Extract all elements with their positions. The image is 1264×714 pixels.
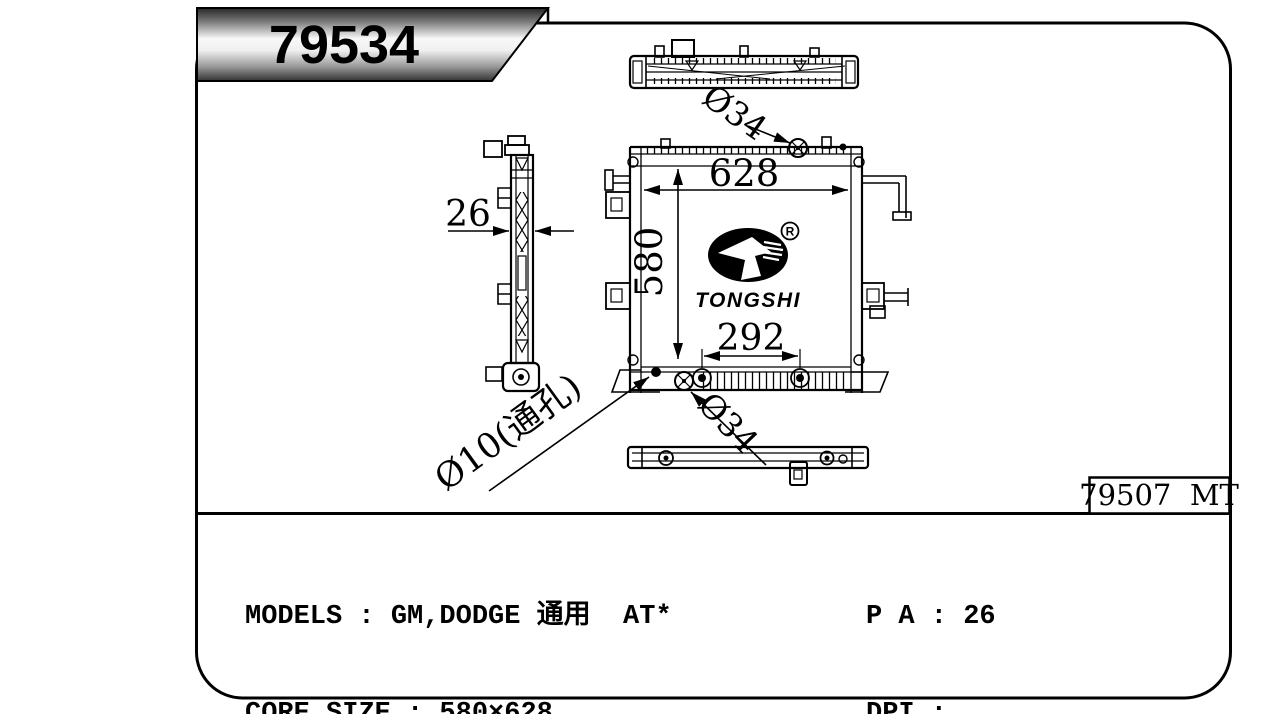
label-bottom-fitting: Ø34: [690, 384, 766, 461]
spec-models: MODELS : GM,DODGE 通用 AT*: [245, 599, 672, 636]
spec-pa: P A : 26: [866, 599, 996, 636]
dim-580: 580: [628, 227, 671, 298]
registered-mark: R: [786, 225, 795, 239]
spec-table-right: P A : 26 DPI : OEM : NISSENS:: [866, 539, 996, 714]
through-hole: [651, 367, 661, 377]
spec-table-left: MODELS : GM,DODGE 通用 AT* CORE SIZE : 580…: [245, 539, 672, 714]
dimension-annotations: 628 580 292 26: [445, 152, 848, 368]
spec-core-size: CORE SIZE : 580×628: [245, 696, 672, 714]
side-view: [484, 136, 539, 391]
part-number-banner: 79534: [197, 8, 548, 81]
catalog-page: 79507 MT 79534: [0, 0, 1264, 714]
dim-628: 628: [709, 152, 780, 195]
part-number: 79534: [269, 15, 419, 75]
logo-brand-text: TONGSHI: [695, 289, 801, 312]
bottom-tank-view: [628, 447, 868, 485]
bottom-tab: [790, 462, 807, 485]
dim-26: 26: [445, 194, 491, 235]
bottom-outlet-fitting: [675, 372, 693, 390]
top-tank-view: [630, 40, 858, 88]
spec-dpi: DPI :: [866, 696, 996, 714]
leader-callouts: Ø34 Ø10(通孔) Ø34: [428, 77, 790, 500]
dim-292: 292: [717, 318, 786, 359]
reference-code: 79507 MT: [1079, 478, 1239, 512]
tongshi-logo: R TONGSHI: [695, 223, 801, 313]
label-through-hole: Ø10(通孔): [428, 367, 589, 500]
filler-neck: [672, 40, 694, 57]
